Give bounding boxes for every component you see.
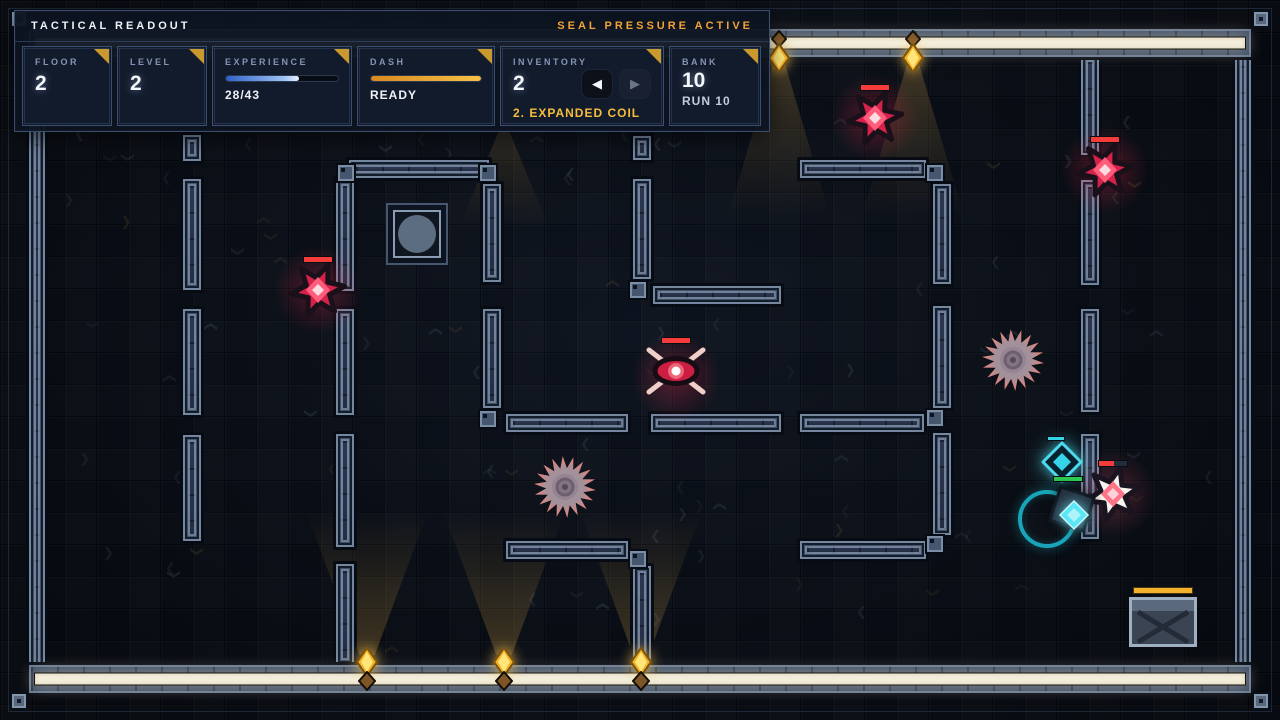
wall-segment (930, 430, 954, 538)
floor-mark-icon: ❯ (191, 546, 204, 557)
hud-cards: FLOOR 2 LEVEL 2 EXPERIENCE 28/43 DASH RE… (15, 42, 769, 126)
level-value: 2 (130, 72, 194, 96)
floor-card: FLOOR 2 (22, 46, 112, 126)
wall-segment (930, 181, 954, 287)
floor-mark-icon: ❯ (1014, 582, 1027, 593)
floor-mark-icon: ❯ (1061, 409, 1074, 420)
wall-segment (1232, 30, 1254, 690)
gem-mount-icon (358, 671, 376, 696)
floor-mark-icon: ❯ (669, 139, 682, 150)
bank-value: 10 (682, 69, 748, 93)
frame-bolt-icon (10, 692, 28, 710)
corner-accent-icon (477, 49, 492, 64)
floor-label: FLOOR (35, 57, 99, 67)
ally-health-bar (1053, 476, 1083, 482)
wall-segment (930, 303, 954, 411)
level-label: LEVEL (130, 57, 194, 67)
wall-segment (503, 538, 631, 562)
corner-accent-icon (646, 49, 661, 64)
floor-mark-icon: ❯ (711, 319, 722, 332)
experience-card: EXPERIENCE 28/43 (212, 46, 352, 126)
wall-segment (180, 176, 204, 293)
floor-mark-icon: ❯ (103, 546, 114, 559)
gem-mount-icon (632, 671, 650, 696)
dash-card: DASH READY (357, 46, 495, 126)
floor-mark-icon: ❯ (506, 467, 519, 478)
dash-bar-fill (371, 76, 481, 81)
bank-run-total: RUN 10 (682, 94, 748, 108)
ally-shield-bar (1047, 436, 1065, 441)
floor-mark-icon: ❯ (605, 278, 618, 289)
wall-junction-block (925, 534, 945, 554)
gem-icon (767, 42, 791, 79)
floor-mark-icon: ❯ (856, 607, 867, 620)
experience-text: 28/43 (225, 88, 339, 102)
bank-label: BANK (682, 57, 748, 67)
floor-mark-icon: ❯ (840, 506, 851, 519)
inventory-count: 2 (513, 72, 525, 96)
reward-chest (1129, 597, 1197, 647)
seal-pressure-status: SEAL PRESSURE ACTIVE (557, 20, 753, 32)
enemy-health-bar (661, 337, 691, 344)
floor-mark-icon: ❯ (927, 587, 940, 598)
floor-mark-icon: ❯ (695, 549, 706, 562)
frame-bolt-icon (1252, 10, 1270, 28)
floor-mark-icon: ❯ (265, 231, 278, 242)
floor-mark-icon: ❯ (87, 319, 100, 330)
floor-mark-icon: ❯ (529, 134, 542, 145)
pedestal (386, 203, 448, 265)
wall-junction-block (925, 163, 945, 183)
enemy-health-bar (1090, 136, 1120, 143)
wall-junction-block (925, 408, 945, 428)
floor-mark-icon: ❯ (161, 173, 172, 186)
wall-junction-block (478, 163, 498, 183)
wall-junction-block (628, 280, 648, 300)
floor-mark-icon: ❯ (485, 466, 496, 479)
corner-accent-icon (189, 49, 204, 64)
player-core-icon (1058, 499, 1090, 536)
experience-bar-fill (226, 76, 299, 81)
floor-mark-icon: ❯ (845, 363, 856, 376)
wall-segment (180, 132, 204, 164)
hud-header: TACTICAL READOUT SEAL PRESSURE ACTIVE (15, 11, 769, 42)
floor-mark-icon: ❯ (794, 577, 805, 590)
floor-mark-icon: ❯ (1203, 472, 1214, 485)
dash-bar (370, 75, 482, 82)
pedestal-orb-icon (398, 215, 436, 253)
enemy-health-bar (303, 256, 333, 263)
floor-mark-icon: ❯ (63, 193, 74, 206)
floor-mark-icon: ❯ (785, 365, 796, 378)
floor-mark-icon: ❯ (416, 134, 427, 147)
wall-junction-block (336, 163, 356, 183)
floor-mark-icon: ❯ (243, 139, 254, 152)
corner-accent-icon (743, 49, 758, 64)
inventory-label: INVENTORY (513, 57, 651, 67)
wall-segment (346, 157, 492, 181)
hud-title: TACTICAL READOUT (31, 20, 190, 32)
floor-mark-icon: ❯ (914, 284, 925, 297)
gem-icon (901, 42, 925, 79)
wall-segment (480, 181, 504, 285)
inventory-prev-button[interactable]: ◀ (581, 69, 613, 99)
corner-accent-icon (334, 49, 349, 64)
floor-mark-icon: ❯ (168, 569, 181, 580)
floor-mark-icon: ❯ (380, 143, 393, 154)
wall-junction-block (628, 549, 648, 569)
floor-mark-icon: ❯ (834, 453, 847, 464)
wall-segment (650, 283, 784, 307)
wall-segment (797, 411, 927, 435)
floor-mark-icon: ❯ (988, 160, 1001, 171)
wall-segment (503, 411, 631, 435)
saw-blade-enemy (523, 445, 607, 534)
gem-mount-icon (495, 671, 513, 696)
floor-mark-icon: ❯ (361, 336, 372, 349)
floor-mark-icon: ❯ (1149, 328, 1162, 339)
wall-segment (630, 176, 654, 282)
enemy-health-bar (1098, 460, 1128, 467)
right-arrow-icon: ▶ (630, 76, 640, 92)
floor-mark-icon: ❯ (675, 482, 686, 495)
floor-mark-icon: ❯ (428, 326, 441, 337)
floor-mark-icon: ❯ (79, 452, 90, 465)
bank-card: BANK 10 RUN 10 (669, 46, 761, 126)
eye-enemy (634, 339, 718, 408)
pedestal-inner (393, 210, 441, 258)
wall-segment (1078, 306, 1102, 415)
level-card: LEVEL 2 (117, 46, 207, 126)
floor-value: 2 (35, 72, 99, 96)
floor-mark-icon: ❯ (1004, 463, 1017, 474)
wall-segment (180, 306, 204, 418)
saw-blade-enemy (971, 318, 1055, 407)
inventory-next-button[interactable]: ▶ (619, 69, 651, 99)
floor-mark-icon: ❯ (305, 408, 318, 419)
floor-mark-icon: ❯ (1122, 306, 1135, 317)
wall-segment (480, 306, 504, 411)
floor-mark-icon: ❯ (203, 321, 216, 332)
hud-panel: TACTICAL READOUT SEAL PRESSURE ACTIVE FL… (14, 10, 770, 132)
frame-bolt-icon (1252, 692, 1270, 710)
wall-segment (333, 561, 357, 668)
dash-label: DASH (370, 57, 482, 67)
floor-mark-icon: ❯ (162, 374, 175, 385)
wall-segment (630, 133, 654, 163)
floor-mark-icon: ❯ (571, 589, 584, 600)
game-screen: ❯❯❯❯❯❯❯❯❯❯❯❯❯❯❯❯❯❯❯❯❯❯❯❯❯❯❯❯❯❯❯❯❯❯❯❯❯❯❯❯… (0, 0, 1280, 720)
floor-mark-icon: ❯ (562, 173, 573, 186)
corner-accent-icon (94, 49, 109, 64)
floor-mark-icon: ❯ (232, 246, 245, 257)
floor-mark-icon: ❯ (450, 324, 463, 335)
left-arrow-icon: ◀ (592, 76, 602, 92)
dash-status: READY (370, 88, 482, 102)
floor-mark-icon: ❯ (384, 645, 397, 656)
experience-bar (225, 75, 339, 82)
chest-bar (1133, 587, 1193, 594)
floor-mark-icon: ❯ (954, 530, 967, 541)
wall-segment (180, 432, 204, 544)
wall-segment (797, 538, 929, 562)
experience-label: EXPERIENCE (225, 57, 339, 67)
floor-mark-icon: ❯ (122, 152, 135, 163)
floor-mark-icon: ❯ (121, 215, 132, 228)
floor-mark-icon: ❯ (256, 215, 269, 226)
floor-mark-icon: ❯ (990, 257, 1001, 270)
inventory-card: INVENTORY 2 ◀ ▶ 2. EXPANDED COIL (500, 46, 664, 126)
floor-mark-icon: ❯ (712, 501, 725, 512)
enemy-health-bar (860, 84, 890, 91)
inventory-selected-item: 2. EXPANDED COIL (513, 106, 651, 120)
floor-mark-icon: ❯ (104, 153, 117, 164)
floor-mark-icon: ❯ (834, 523, 845, 536)
floor-mark-icon: ❯ (595, 601, 608, 612)
wall-junction-block (478, 409, 498, 429)
wall-segment (333, 431, 357, 550)
